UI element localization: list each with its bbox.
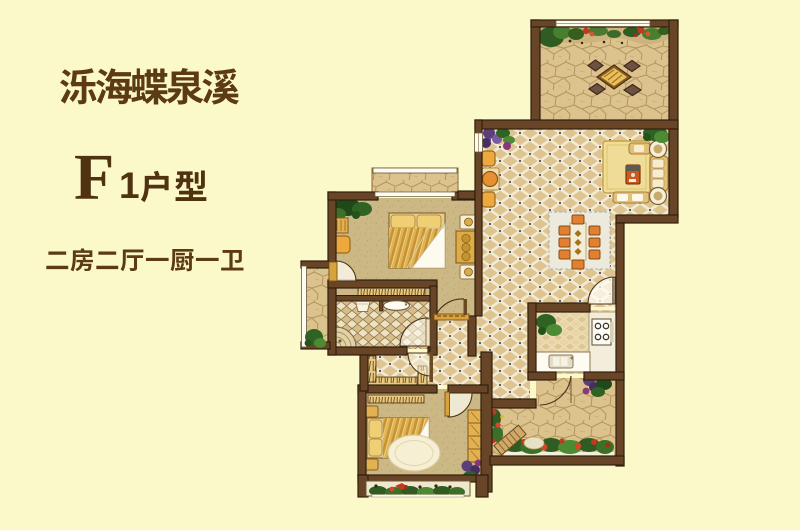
svg-text:F: F [74,141,114,214]
svg-text:1: 1 [119,165,140,206]
